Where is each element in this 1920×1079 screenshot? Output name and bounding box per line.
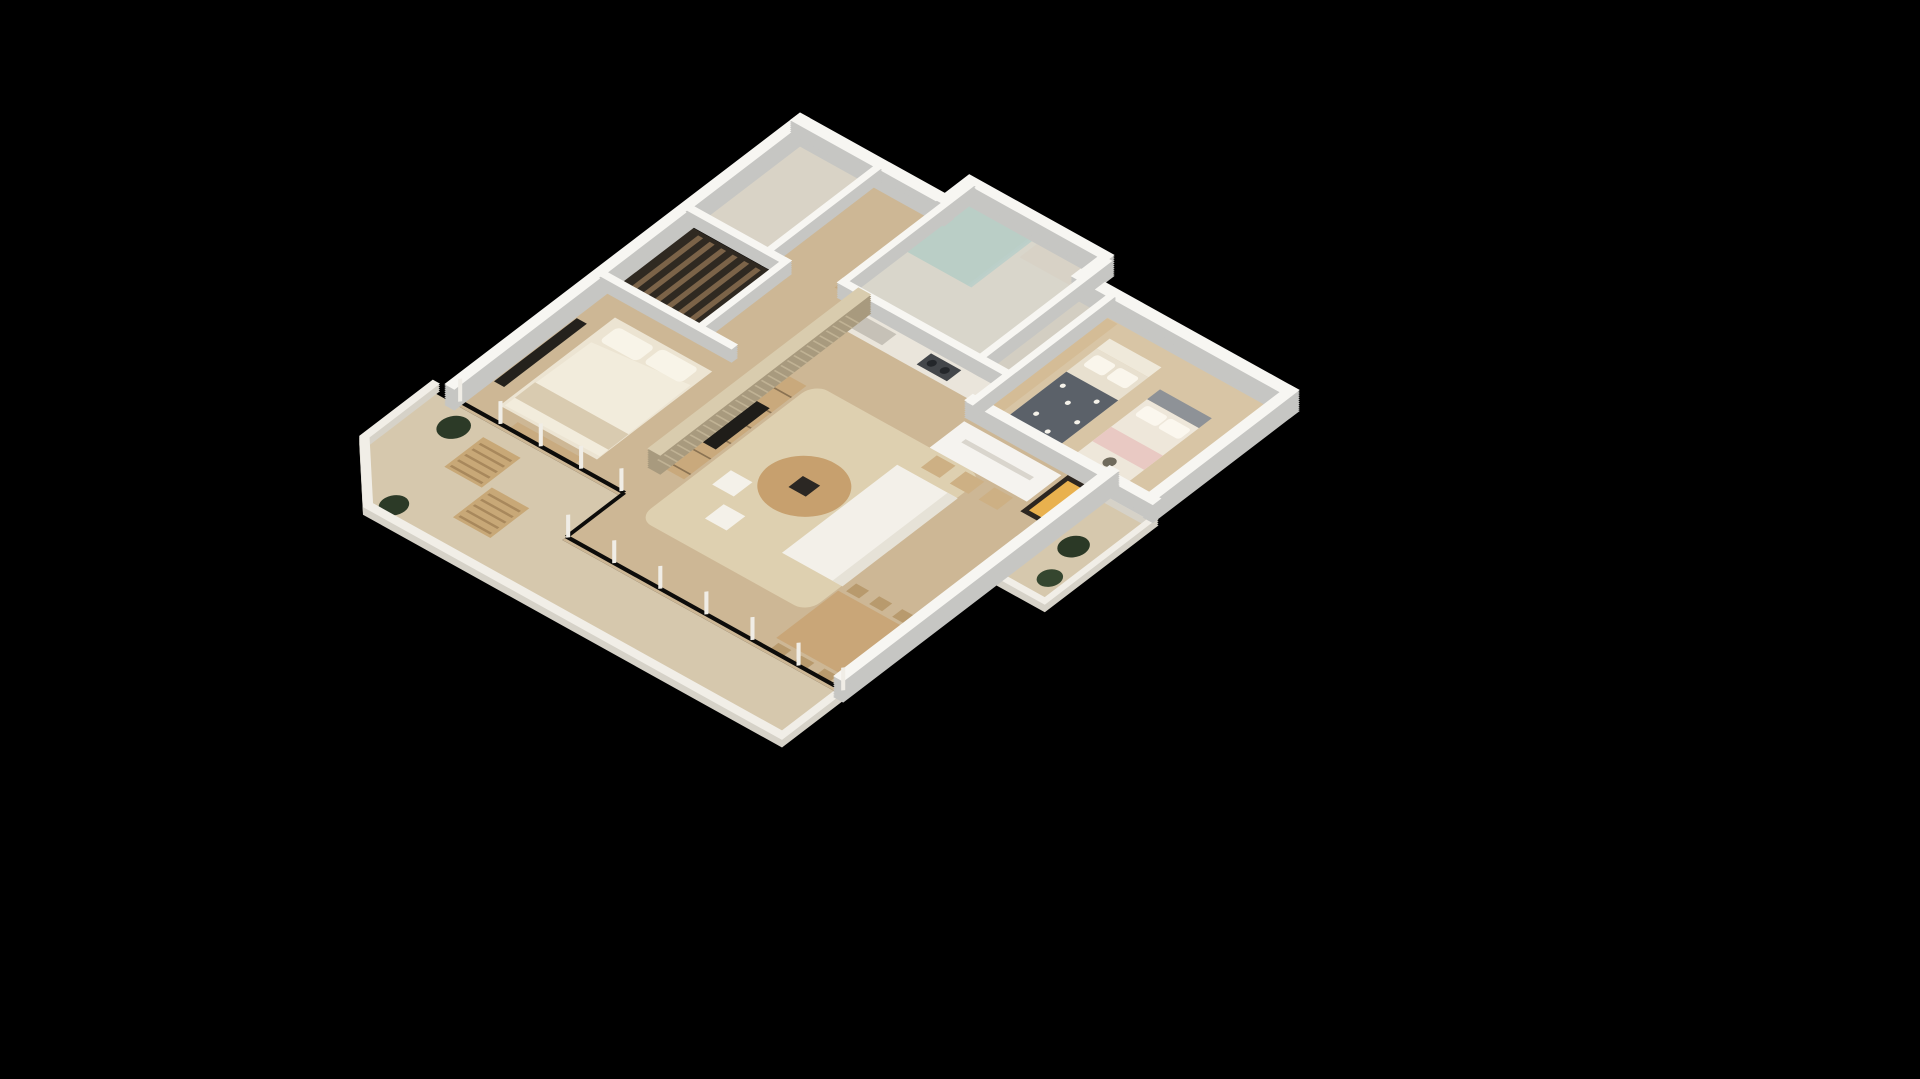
floorplan-group (308, 93, 1338, 770)
black-backdrop (0, 0, 1920, 1079)
apartment-dollhouse-render (0, 0, 1920, 1079)
